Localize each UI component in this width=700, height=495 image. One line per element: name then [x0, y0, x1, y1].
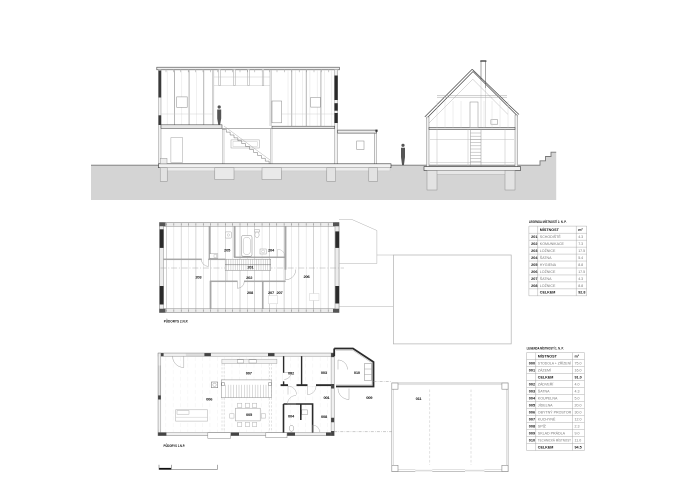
svg-text:PŮDORYS 2.N.P.: PŮDORYS 2.N.P.	[164, 318, 189, 323]
svg-text:MÍSTNOST: MÍSTNOST	[540, 227, 560, 232]
svg-text:207: 207	[276, 290, 283, 295]
svg-text:PŮDORYS 1.N.P.: PŮDORYS 1.N.P.	[164, 443, 186, 448]
svg-text:16.0: 16.0	[575, 368, 582, 372]
svg-text:HYGIENA: HYGIENA	[540, 263, 557, 267]
svg-text:001: 001	[323, 395, 330, 400]
svg-text:206: 206	[531, 270, 537, 274]
svg-text:004: 004	[288, 414, 295, 419]
svg-text:010: 010	[529, 438, 535, 442]
svg-text:8.8: 8.8	[578, 284, 583, 288]
svg-text:11.0: 11.0	[575, 438, 582, 442]
svg-text:005: 005	[246, 412, 253, 417]
svg-text:201: 201	[531, 235, 537, 239]
svg-text:30.0: 30.0	[575, 410, 582, 414]
svg-text:SCHODIŠTĚ: SCHODIŠTĚ	[540, 234, 562, 239]
svg-text:ŠATNA: ŠATNA	[540, 276, 552, 281]
svg-text:LEGENDA MÍSTNOSTÍ 2. N. P.: LEGENDA MÍSTNOSTÍ 2. N. P.	[529, 219, 567, 224]
svg-text:205: 205	[531, 263, 537, 267]
svg-text:7.3: 7.3	[578, 242, 583, 246]
svg-text:007: 007	[246, 370, 253, 375]
svg-text:94.5: 94.5	[575, 445, 582, 449]
svg-text:2.3: 2.3	[575, 424, 580, 428]
svg-text:001: 001	[529, 368, 535, 372]
svg-text:CELKEM: CELKEM	[540, 291, 556, 295]
svg-text:207: 207	[531, 277, 537, 281]
svg-text:206: 206	[303, 274, 310, 279]
svg-text:91.0: 91.0	[575, 375, 582, 379]
svg-text:4.3: 4.3	[578, 277, 583, 281]
svg-text:006: 006	[529, 410, 535, 414]
svg-text:17.5: 17.5	[578, 249, 585, 253]
svg-text:12.0: 12.0	[575, 417, 582, 421]
svg-text:203: 203	[195, 275, 202, 280]
svg-text:8.8: 8.8	[578, 263, 583, 267]
svg-text:205: 205	[224, 247, 231, 252]
svg-text:5.4: 5.4	[578, 256, 583, 260]
svg-text:201: 201	[247, 264, 254, 269]
svg-text:008: 008	[529, 424, 535, 428]
svg-text:004: 004	[529, 396, 536, 400]
svg-text:STODOLA + ZŘÍZENÍ: STODOLA + ZŘÍZENÍ	[538, 360, 571, 365]
svg-text:009: 009	[366, 395, 373, 400]
svg-text:010: 010	[354, 370, 361, 375]
svg-text:LOŽNICE: LOŽNICE	[540, 269, 556, 274]
svg-text:000: 000	[529, 361, 535, 365]
svg-text:75.0: 75.0	[575, 361, 582, 365]
svg-text:KOUPELNA: KOUPELNA	[538, 396, 558, 400]
svg-text:008: 008	[321, 414, 328, 419]
svg-text:002: 002	[529, 382, 535, 386]
svg-text:006: 006	[206, 397, 213, 402]
svg-text:MÍSTNOST: MÍSTNOST	[538, 354, 558, 359]
svg-text:009: 009	[529, 431, 535, 435]
svg-text:4.0: 4.0	[575, 382, 580, 386]
svg-text:003: 003	[529, 389, 535, 393]
svg-text:5.0: 5.0	[575, 396, 580, 400]
svg-text:204: 204	[268, 248, 275, 253]
svg-text:LOŽNICE: LOŽNICE	[540, 283, 556, 288]
svg-text:204: 204	[531, 256, 538, 260]
svg-text:ŠATNA: ŠATNA	[538, 388, 550, 393]
svg-text:011: 011	[416, 396, 423, 401]
svg-text:m²: m²	[575, 355, 580, 359]
svg-text:4.3: 4.3	[578, 235, 583, 239]
svg-text:4.3: 4.3	[575, 389, 580, 393]
svg-text:007: 007	[529, 417, 535, 421]
svg-text:92.8: 92.8	[578, 291, 585, 295]
svg-text:002: 002	[288, 370, 295, 375]
svg-text:LEGENDA MÍSTNOSTÍ 1. N. P.: LEGENDA MÍSTNOSTÍ 1. N. P.	[527, 346, 564, 351]
svg-text:003: 003	[321, 370, 328, 375]
svg-text:KUCHYNĚ: KUCHYNĚ	[538, 416, 556, 421]
svg-text:KOMUNIKACE: KOMUNIKACE	[540, 242, 565, 246]
svg-text:ZÁDVEŘÍ: ZÁDVEŘÍ	[538, 381, 554, 386]
svg-text:ZÁZEMÍ: ZÁZEMÍ	[538, 368, 551, 372]
svg-text:JÍDELNA: JÍDELNA	[538, 403, 553, 407]
svg-text:203: 203	[531, 249, 537, 253]
svg-text:9.0: 9.0	[575, 431, 580, 435]
svg-text:202: 202	[531, 242, 537, 246]
svg-text:OBYTNÝ PROSTOR: OBYTNÝ PROSTOR	[538, 410, 572, 414]
svg-text:ŠATNA: ŠATNA	[540, 255, 552, 260]
svg-text:CELKEM: CELKEM	[538, 445, 554, 449]
svg-text:20.0: 20.0	[575, 403, 582, 407]
svg-text:LOŽNICE: LOŽNICE	[540, 248, 556, 253]
svg-text:207: 207	[268, 290, 275, 295]
svg-text:17.5: 17.5	[578, 270, 585, 274]
svg-text:SKLAD PRÁDLA: SKLAD PRÁDLA	[538, 431, 566, 435]
svg-text:CELKEM: CELKEM	[538, 375, 554, 379]
svg-text:m²: m²	[578, 228, 583, 232]
svg-text:202: 202	[246, 275, 253, 280]
svg-text:005: 005	[529, 403, 535, 407]
svg-text:TECHNICKÁ MÍSTNOST: TECHNICKÁ MÍSTNOST	[538, 438, 572, 442]
svg-text:208: 208	[247, 290, 254, 295]
svg-text:SPÍŽ: SPÍŽ	[538, 423, 547, 428]
svg-text:208: 208	[531, 284, 537, 288]
